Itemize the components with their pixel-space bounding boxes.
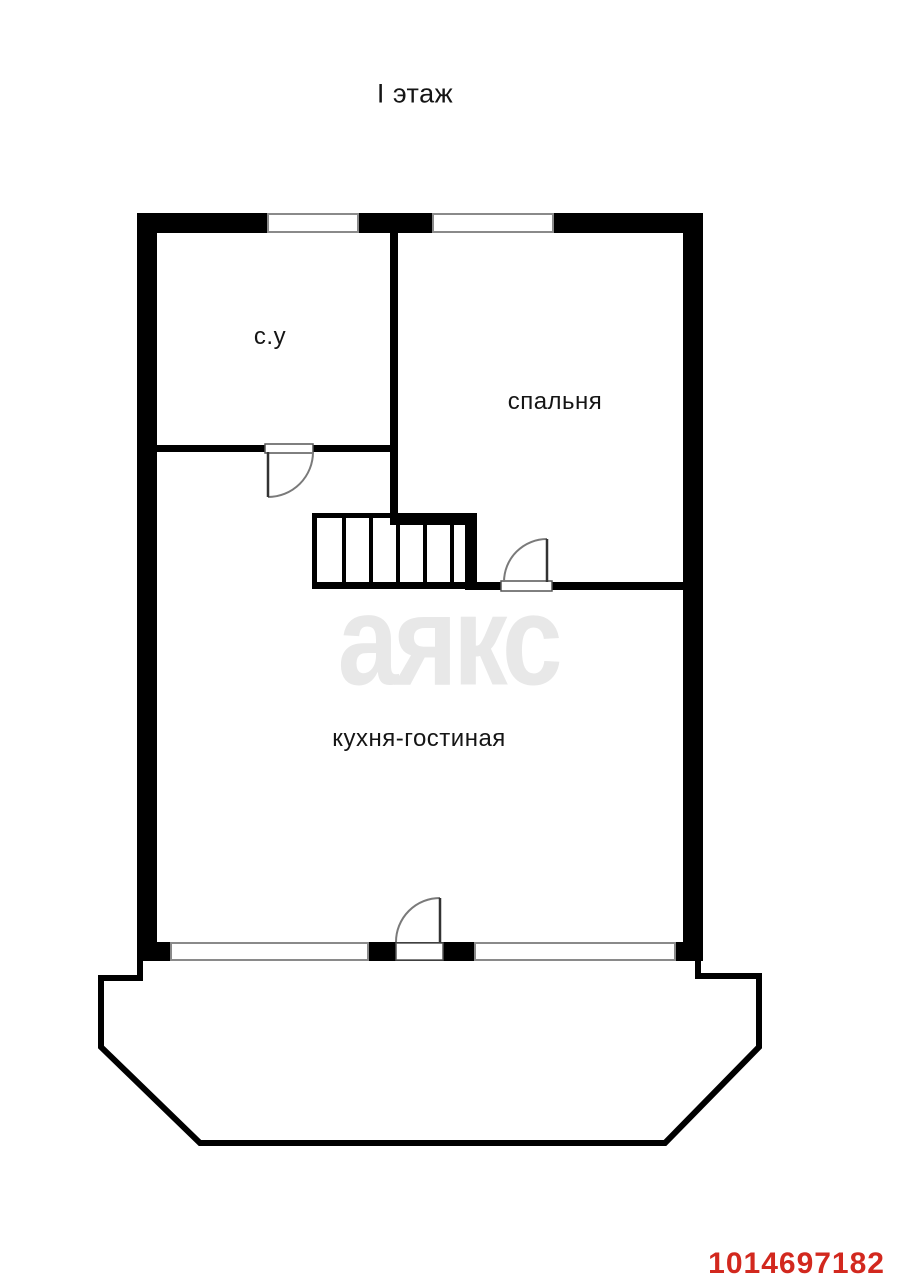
floor-title: I этаж (377, 79, 453, 110)
door-entrance (396, 898, 443, 960)
door-arc (396, 898, 440, 942)
listing-id: 1014697182 (708, 1247, 885, 1280)
room-label-bathroom: с.у (254, 323, 286, 351)
door-arc (268, 452, 313, 497)
stair-left-edge (312, 513, 317, 589)
wall-right (683, 213, 703, 961)
window-bottom-left (171, 943, 368, 960)
wall-bathroom-bottom-left (157, 445, 265, 452)
wall-bathroom-bottom-right (313, 445, 390, 452)
stair-top-thick-bar (390, 513, 477, 525)
door-bathroom (265, 444, 313, 497)
window-top-right (433, 214, 553, 232)
agency-watermark: аякс (338, 568, 559, 715)
wall-left (137, 213, 157, 961)
door-opening (265, 444, 313, 453)
wall-partition-vertical (390, 233, 398, 525)
door-opening (396, 943, 443, 960)
stair-top-thin-edge (312, 513, 390, 518)
wall-top (137, 213, 703, 233)
room-label-kitchen-living: кухня-гостиная (332, 725, 506, 753)
window-bottom-right (475, 943, 675, 960)
wall-bedroom-bottom-right (552, 582, 683, 590)
terrace-outline (101, 961, 759, 1143)
interior-walls (157, 233, 683, 590)
window-top-left (268, 214, 358, 232)
room-label-bedroom: спальня (508, 388, 603, 416)
floor-plan-page: I этаж с.у спальня кухня-гостиная аякс 1… (0, 0, 909, 1280)
